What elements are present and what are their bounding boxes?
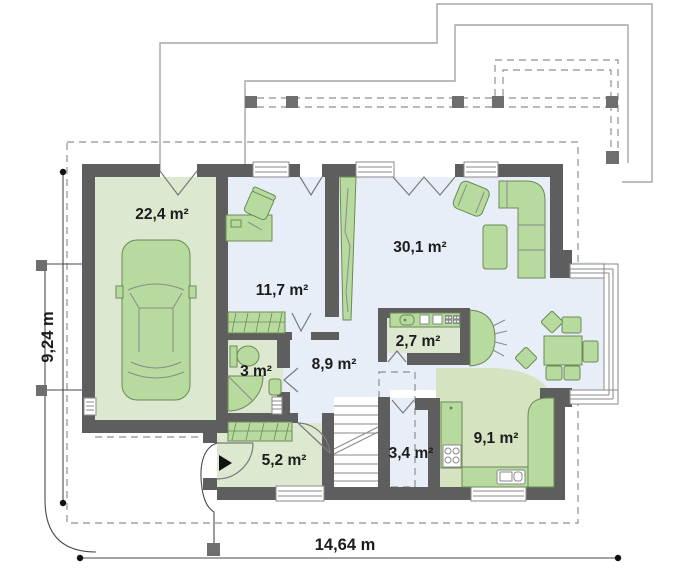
pergola-outline — [245, 60, 619, 164]
window-icon — [464, 162, 498, 177]
sink-icon — [269, 379, 281, 395]
pergola-post-icon — [286, 96, 298, 108]
wardrobe-icon — [228, 312, 285, 333]
coffee-table-icon — [483, 225, 507, 269]
window-icon — [471, 486, 526, 501]
porch-post-icon — [207, 543, 220, 556]
pergola-post-icon — [245, 96, 257, 108]
canopy-post-icon — [36, 385, 47, 396]
garage-area-label: 22,4 m² — [135, 206, 188, 223]
office-area-label: 11,7 m² — [256, 282, 309, 299]
window-icon — [253, 162, 289, 177]
wardrobe-icon — [228, 422, 292, 441]
dining-table-icon — [544, 336, 582, 365]
bathroom-area-label: 3 m² — [240, 363, 272, 380]
entry-area-label: 5,2 m² — [262, 452, 307, 469]
radiator-icon — [272, 397, 282, 414]
pergola-post-icon — [452, 96, 464, 108]
hall-area-label: 8,9 m² — [312, 356, 357, 373]
porch-curve — [201, 443, 217, 543]
floor-plan-drawing: 22,4 m² 11,7 m² 30,1 m² 2,7 m² 8,9 m² 3 … — [0, 0, 700, 575]
pergola-post-icon — [492, 96, 504, 108]
window-icon — [356, 162, 394, 177]
floor-plan-canvas: 22,4 m² 11,7 m² 30,1 m² 2,7 m² 8,9 m² 3 … — [0, 0, 700, 575]
living-area-label: 30,1 m² — [393, 239, 446, 256]
pergola-post-icon — [606, 151, 619, 164]
roof-outline — [160, 4, 652, 182]
depth-dimension-label: 9,24 m — [39, 311, 57, 362]
canopy-post-icon — [36, 260, 47, 271]
kitchen-sink-icon — [497, 470, 525, 484]
corridor-area-label: 3,4 m² — [389, 445, 434, 462]
pergola-post-icon — [606, 96, 618, 108]
width-dimension-label: 14,64 m — [315, 536, 376, 554]
stove-icon — [443, 445, 461, 467]
pantry-counter-icon — [390, 313, 460, 327]
window-icon — [276, 486, 324, 501]
car-icon — [116, 240, 196, 400]
vent-icon — [84, 398, 96, 415]
pantry-area-label: 2,7 m² — [396, 333, 441, 350]
kitchen-area-label: 9,1 m² — [474, 430, 519, 447]
